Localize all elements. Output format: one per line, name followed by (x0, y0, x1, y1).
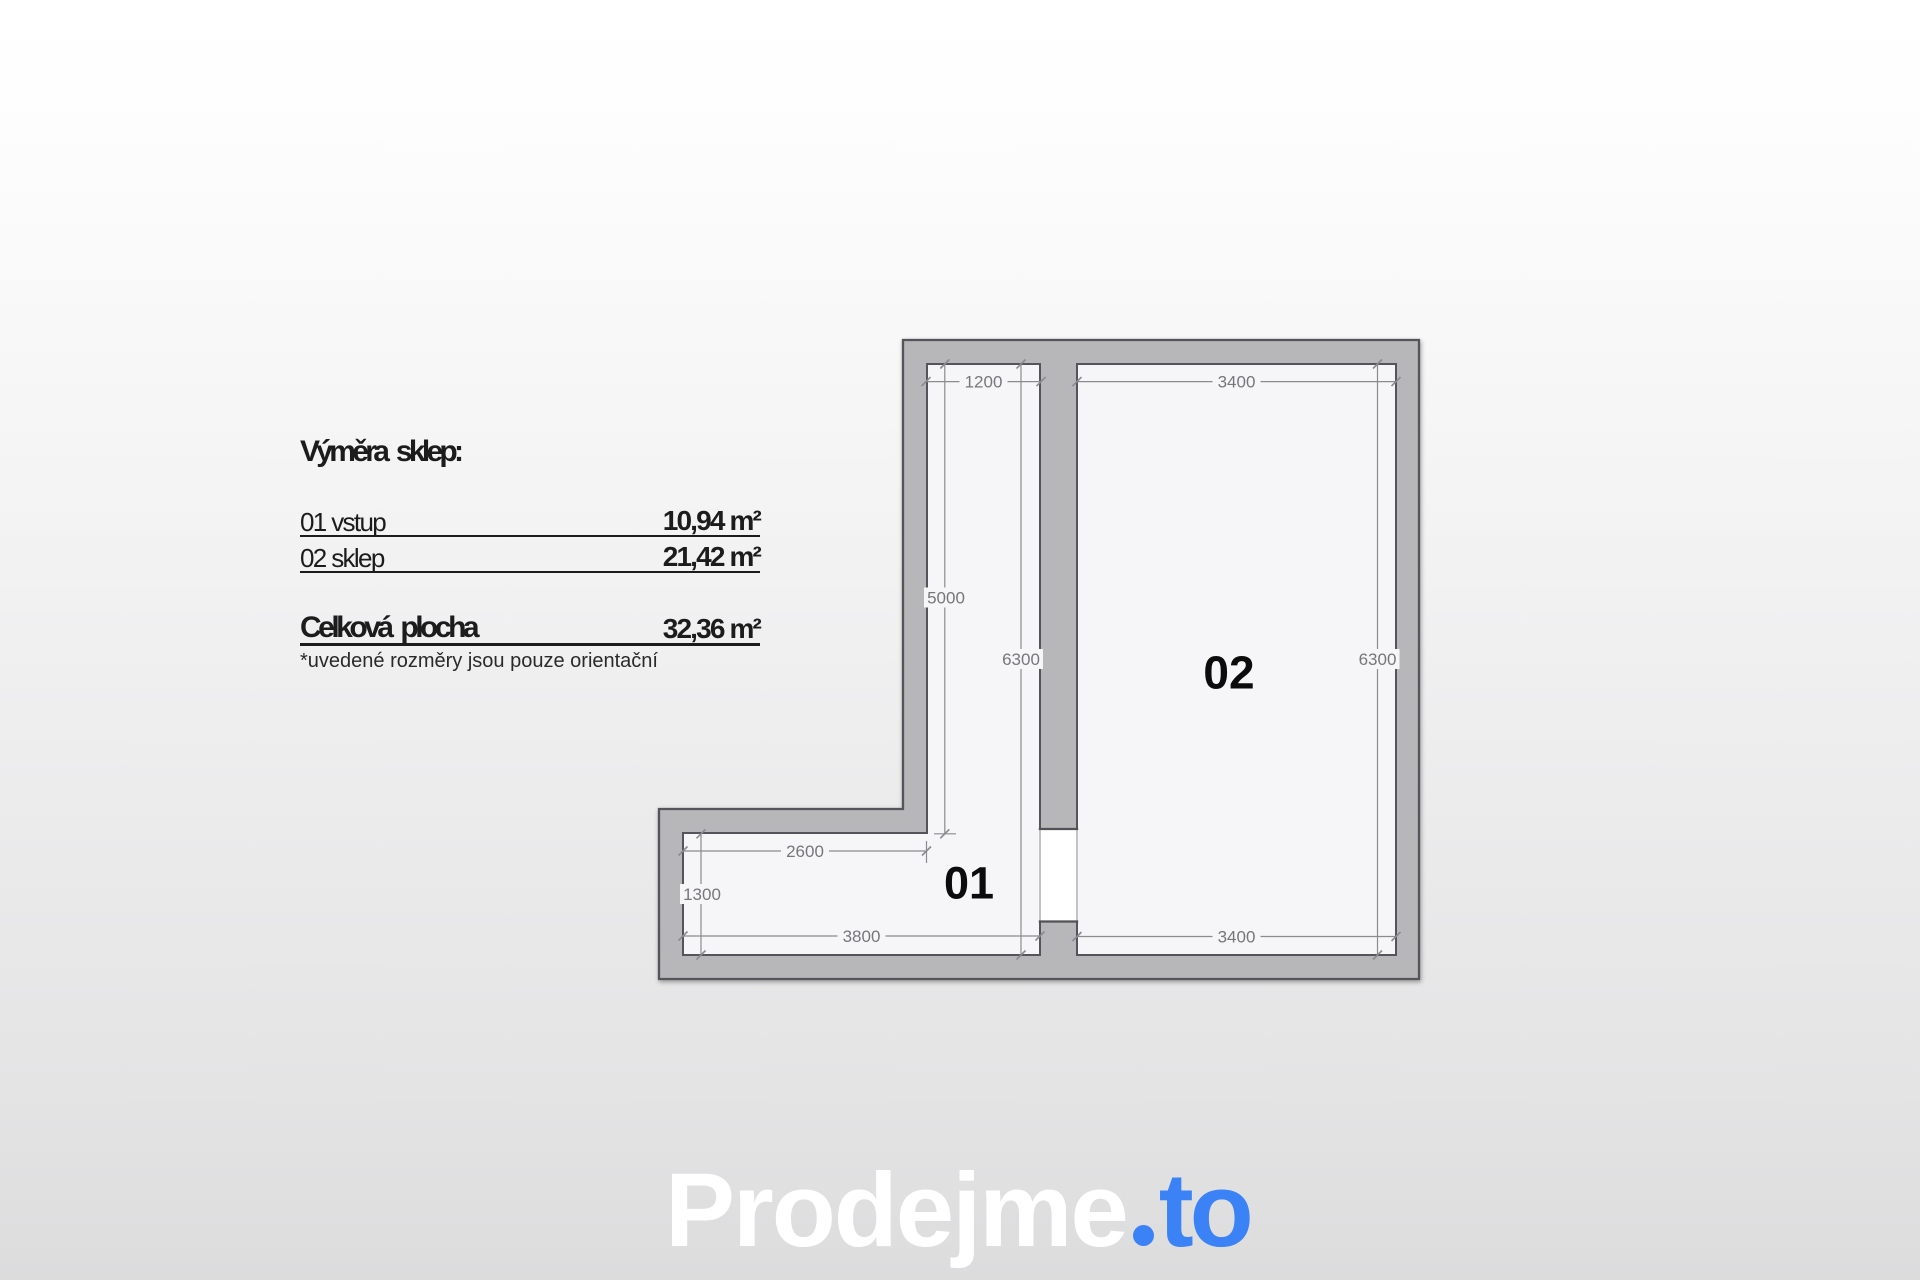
svg-text:1200: 1200 (965, 373, 1003, 392)
svg-text:2600: 2600 (786, 842, 824, 861)
svg-text:3800: 3800 (843, 927, 881, 946)
svg-text:5000: 5000 (927, 589, 965, 608)
svg-text:6300: 6300 (1002, 650, 1040, 669)
svg-text:1300: 1300 (683, 885, 721, 904)
svg-text:02: 02 (1203, 647, 1254, 699)
svg-text:6300: 6300 (1359, 650, 1397, 669)
svg-text:3400: 3400 (1218, 373, 1256, 392)
svg-text:01: 01 (944, 858, 994, 909)
svg-text:3400: 3400 (1218, 928, 1256, 947)
